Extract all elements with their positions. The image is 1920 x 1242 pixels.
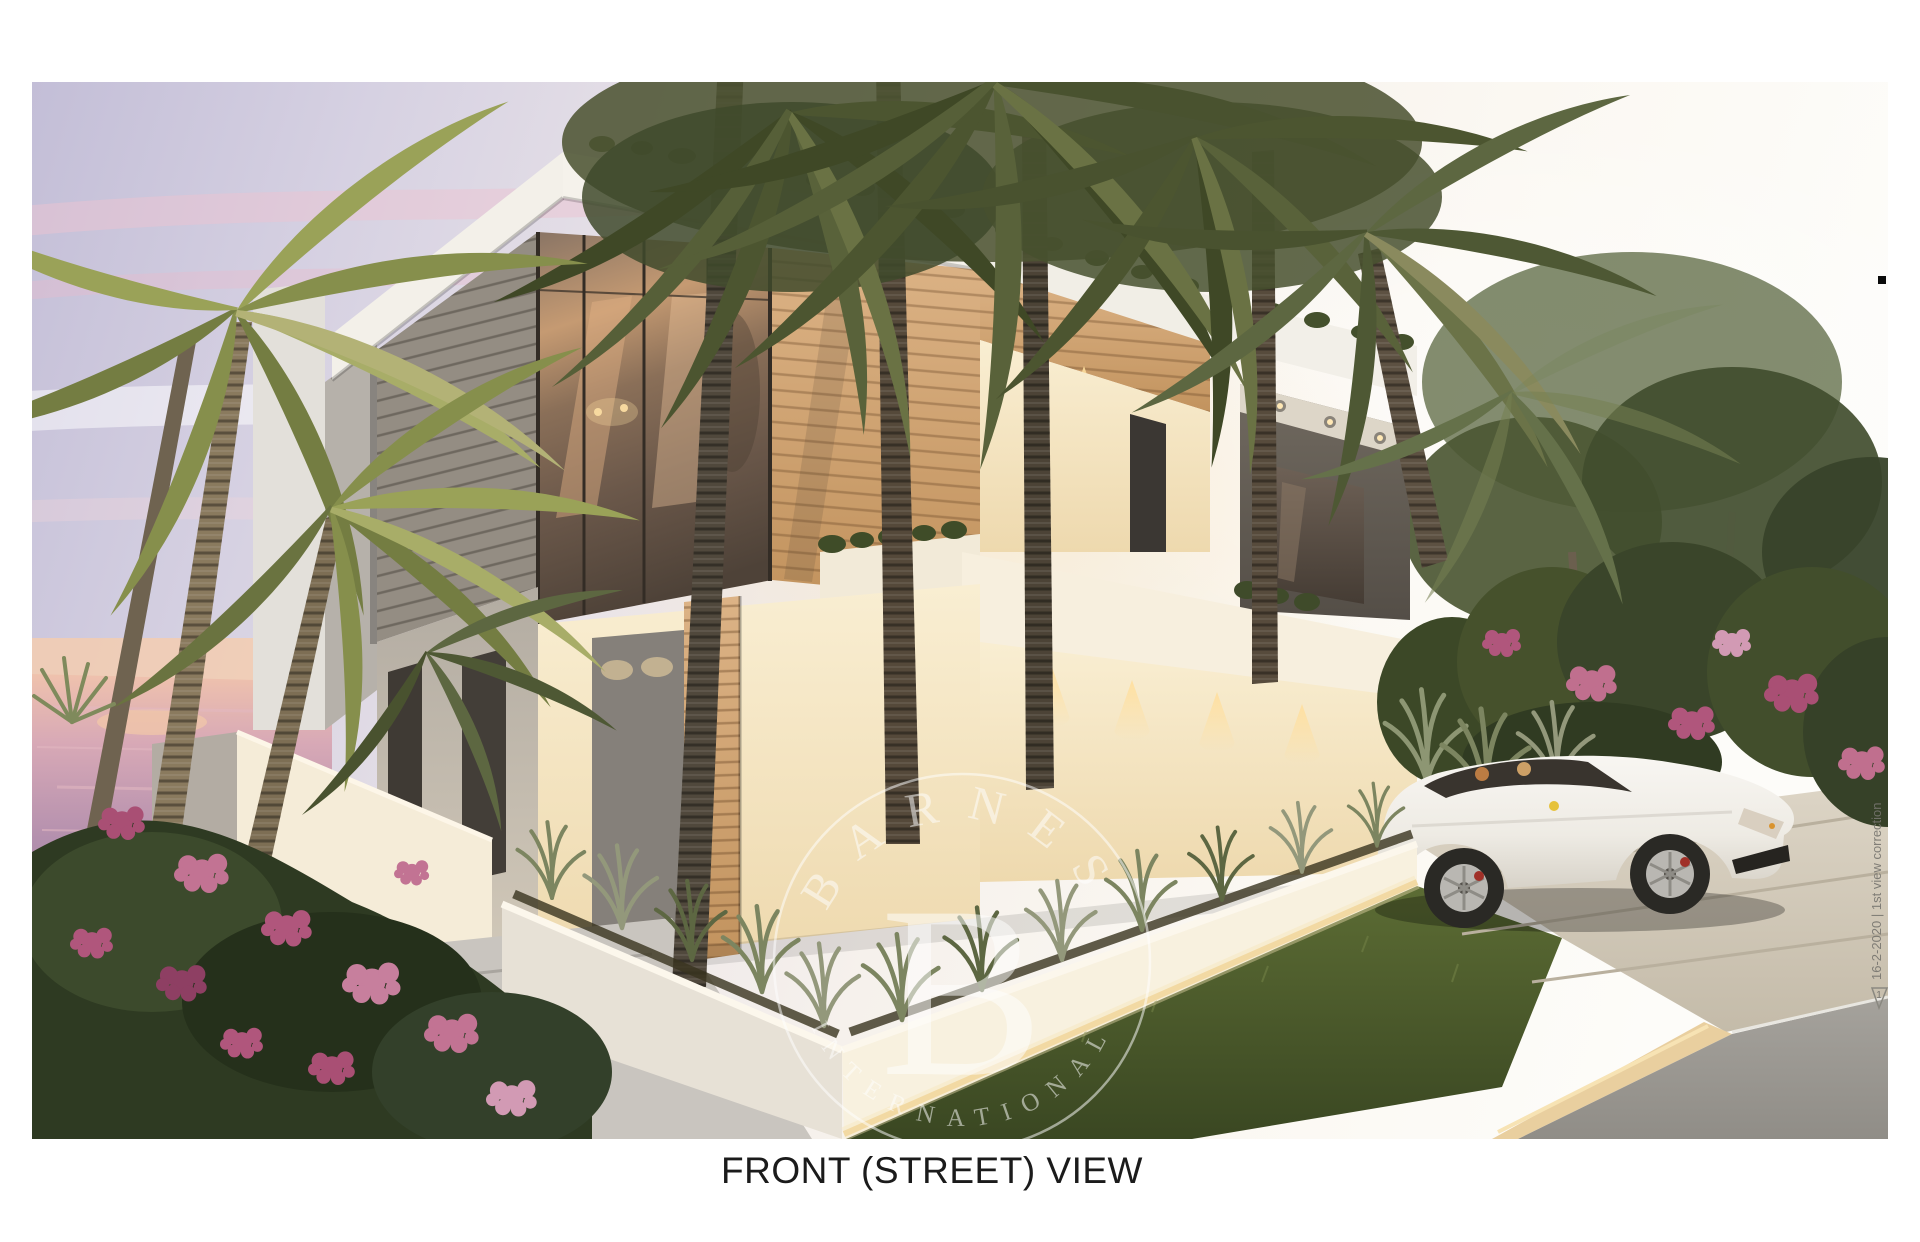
recess-light xyxy=(601,660,633,680)
sports-car xyxy=(1375,756,1794,932)
brake-caliper xyxy=(1680,857,1690,867)
brake-caliper xyxy=(1474,871,1484,881)
window-slot xyxy=(1130,414,1166,552)
rendering-scene: BARNES INTERNATIONAL B 16-2-2020 | 1st v… xyxy=(32,82,1888,1139)
page: BARNES INTERNATIONAL B 16-2-2020 | 1st v… xyxy=(0,0,1920,1242)
revision-note-text: 16-2-2020 | 1st view correction xyxy=(1869,802,1884,980)
revision-marker-number: 1 xyxy=(1876,990,1882,1001)
watermark-initial: B xyxy=(880,856,1043,1127)
dust-speck xyxy=(1878,276,1886,284)
entry-recess xyxy=(592,630,684,958)
window-glint xyxy=(1475,767,1489,781)
recess-light xyxy=(641,657,673,677)
side-badge xyxy=(1549,801,1559,811)
rendering-photo: BARNES INTERNATIONAL B 16-2-2020 | 1st v… xyxy=(32,82,1888,1139)
caption: FRONT (STREET) VIEW xyxy=(4,1150,1860,1192)
window-glint xyxy=(1517,762,1531,776)
